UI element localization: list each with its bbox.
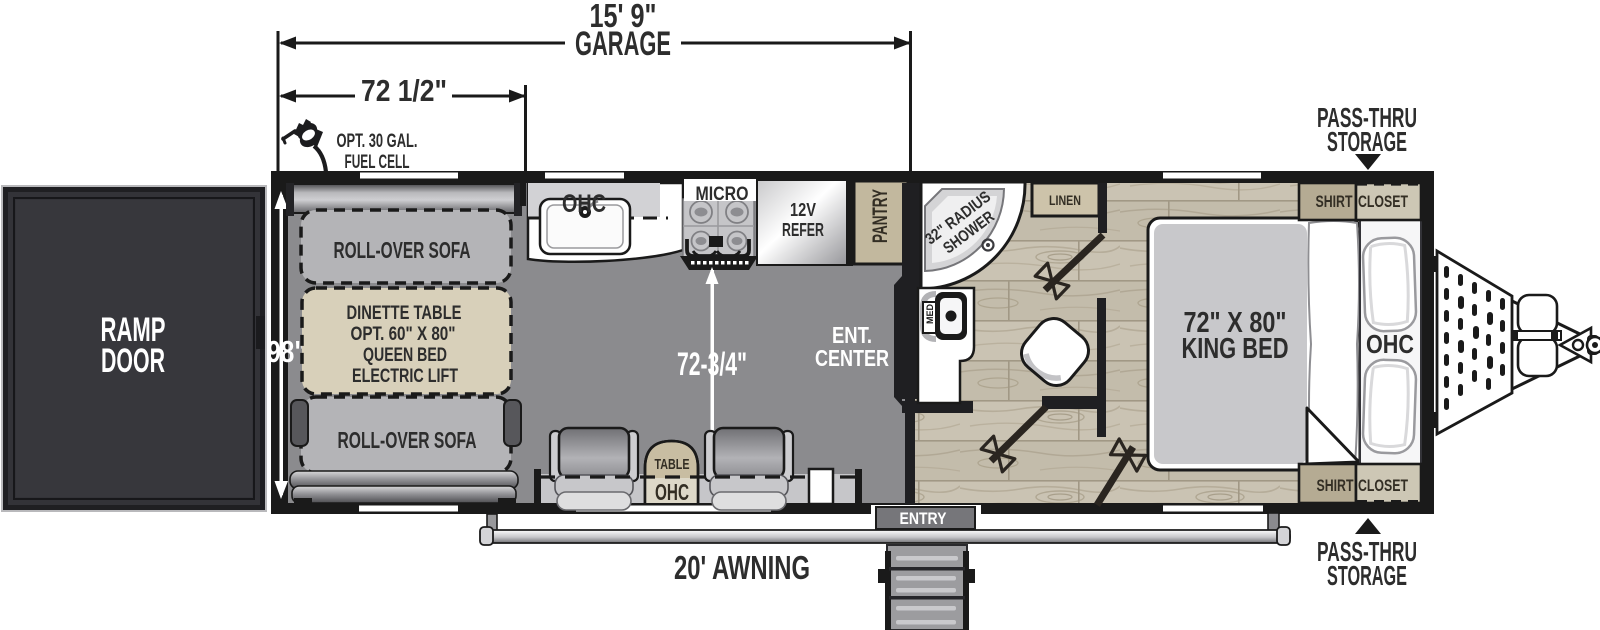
svg-text:CLOSET: CLOSET (1358, 476, 1408, 495)
svg-text:SHIRT: SHIRT (1316, 192, 1353, 211)
svg-text:QUEEN BED: QUEEN BED (363, 345, 447, 366)
svg-text:72 1/2": 72 1/2" (361, 73, 447, 108)
svg-text:98": 98" (267, 334, 306, 369)
svg-text:FUEL CELL: FUEL CELL (345, 152, 410, 173)
svg-text:20' AWNING: 20' AWNING (674, 549, 810, 586)
svg-text:MED: MED (925, 304, 935, 325)
svg-text:ROLL-OVER SOFA: ROLL-OVER SOFA (334, 237, 471, 263)
svg-text:ROLL-OVER SOFA: ROLL-OVER SOFA (338, 427, 477, 453)
svg-text:KING BED: KING BED (1182, 333, 1289, 365)
svg-text:OHC: OHC (655, 479, 689, 505)
svg-text:STORAGE: STORAGE (1327, 560, 1407, 591)
svg-text:MICRO: MICRO (696, 184, 749, 205)
svg-text:ELECTRIC LIFT: ELECTRIC LIFT (352, 366, 458, 387)
svg-text:DINETTE TABLE: DINETTE TABLE (347, 303, 462, 324)
svg-text:REFER: REFER (782, 220, 824, 240)
svg-text:GARAGE: GARAGE (575, 25, 671, 63)
svg-text:STORAGE: STORAGE (1327, 126, 1407, 157)
svg-text:CLOSET: CLOSET (1358, 192, 1408, 211)
svg-text:OHC: OHC (1366, 329, 1414, 359)
svg-text:CENTER: CENTER (815, 345, 889, 371)
svg-text:SHIRT: SHIRT (1317, 476, 1354, 495)
svg-text:OHC: OHC (562, 190, 606, 218)
svg-text:PANTRY: PANTRY (869, 189, 892, 243)
svg-text:ENTRY: ENTRY (900, 509, 948, 528)
svg-text:12V: 12V (790, 200, 816, 220)
svg-text:LINEN: LINEN (1049, 192, 1081, 208)
svg-text:72-3/4": 72-3/4" (677, 346, 747, 382)
svg-text:TABLE: TABLE (655, 456, 690, 473)
svg-text:OPT. 60" X 80": OPT. 60" X 80" (351, 324, 456, 345)
svg-text:OPT. 30 GAL.: OPT. 30 GAL. (337, 131, 418, 152)
svg-text:DOOR: DOOR (101, 342, 165, 380)
